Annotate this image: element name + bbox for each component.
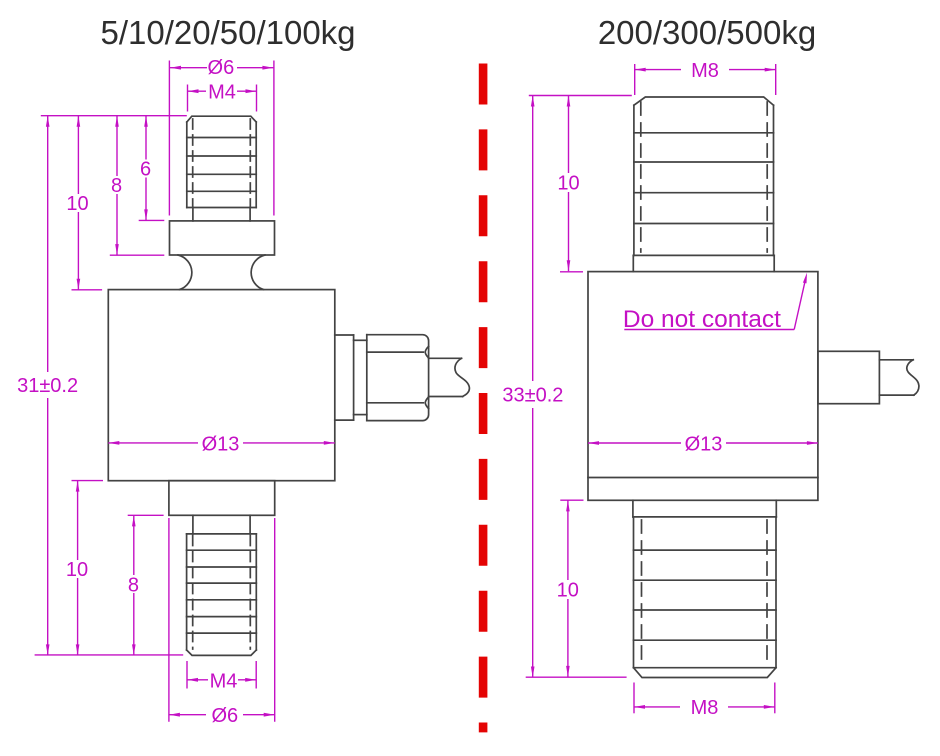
svg-text:10: 10 xyxy=(557,173,579,195)
svg-text:5/10/20/50/100kg: 5/10/20/50/100kg xyxy=(100,14,355,51)
svg-text:M8: M8 xyxy=(691,697,719,719)
svg-text:10: 10 xyxy=(66,559,88,581)
svg-text:33±0.2: 33±0.2 xyxy=(502,385,563,407)
svg-text:M4: M4 xyxy=(208,82,236,104)
svg-text:Do not contact: Do not contact xyxy=(623,306,781,333)
svg-text:10: 10 xyxy=(66,193,88,215)
svg-text:M4: M4 xyxy=(210,670,238,692)
svg-text:6: 6 xyxy=(140,159,151,181)
svg-text:8: 8 xyxy=(128,575,139,597)
svg-text:31±0.2: 31±0.2 xyxy=(17,375,78,397)
svg-text:Ø13: Ø13 xyxy=(202,434,240,456)
svg-text:Ø6: Ø6 xyxy=(208,57,235,79)
svg-text:10: 10 xyxy=(557,580,579,602)
svg-text:M8: M8 xyxy=(691,60,719,82)
svg-text:Ø13: Ø13 xyxy=(685,434,723,456)
svg-text:200/300/500kg: 200/300/500kg xyxy=(598,14,816,51)
svg-text:8: 8 xyxy=(111,175,122,197)
svg-text:Ø6: Ø6 xyxy=(211,705,238,727)
